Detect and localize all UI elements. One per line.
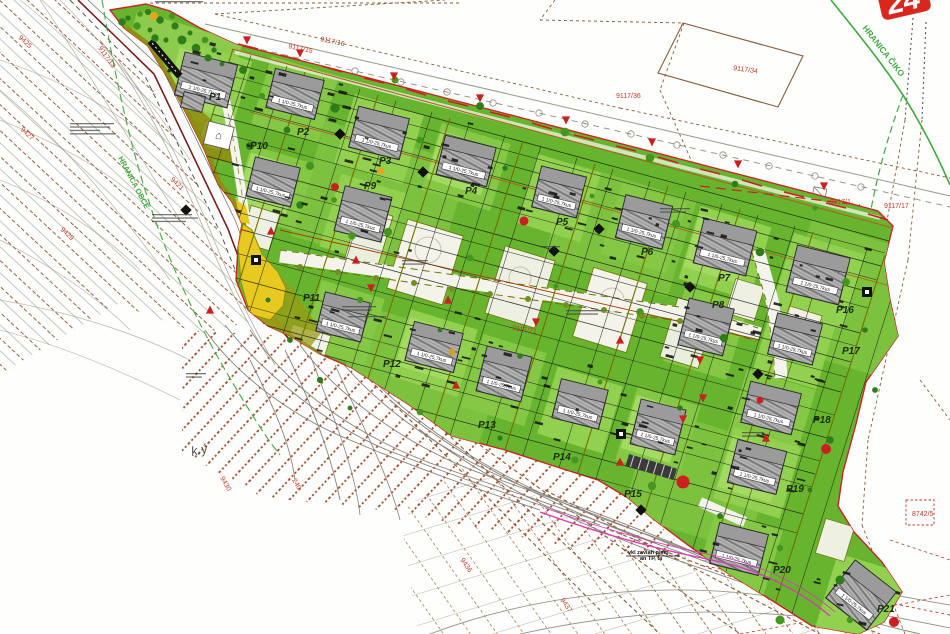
svg-text:P17: P17 [842, 346, 860, 357]
svg-text:P12: P12 [383, 359, 401, 370]
svg-text:P4: P4 [465, 186, 478, 197]
svg-text:9117/17: 9117/17 [884, 203, 909, 210]
svg-text:P20: P20 [773, 565, 791, 576]
svg-text:P9: P9 [364, 181, 377, 192]
svg-text:P21: P21 [877, 604, 895, 615]
svg-text:P1: P1 [209, 92, 222, 103]
svg-text:8742/5: 8742/5 [912, 511, 934, 518]
svg-text:P3: P3 [379, 156, 392, 167]
svg-text:P2: P2 [297, 127, 310, 138]
svg-text:P8: P8 [712, 300, 725, 311]
svg-text:P19: P19 [786, 484, 804, 495]
svg-text:9117/36: 9117/36 [616, 93, 641, 100]
svg-text:P18: P18 [813, 415, 831, 426]
svg-text:an TP, ta: an TP, ta [640, 556, 663, 562]
svg-text:P6: P6 [641, 247, 654, 258]
svg-text:P13: P13 [478, 420, 496, 431]
svg-text:P11: P11 [303, 293, 320, 304]
svg-text:P14: P14 [553, 452, 571, 463]
svg-text:P16: P16 [836, 305, 854, 316]
svg-text:P10: P10 [250, 141, 268, 152]
svg-text:P7: P7 [718, 273, 731, 284]
svg-text:9117/1: 9117/1 [830, 199, 851, 206]
svg-text:P15: P15 [624, 489, 642, 500]
svg-text:P5: P5 [556, 217, 569, 228]
